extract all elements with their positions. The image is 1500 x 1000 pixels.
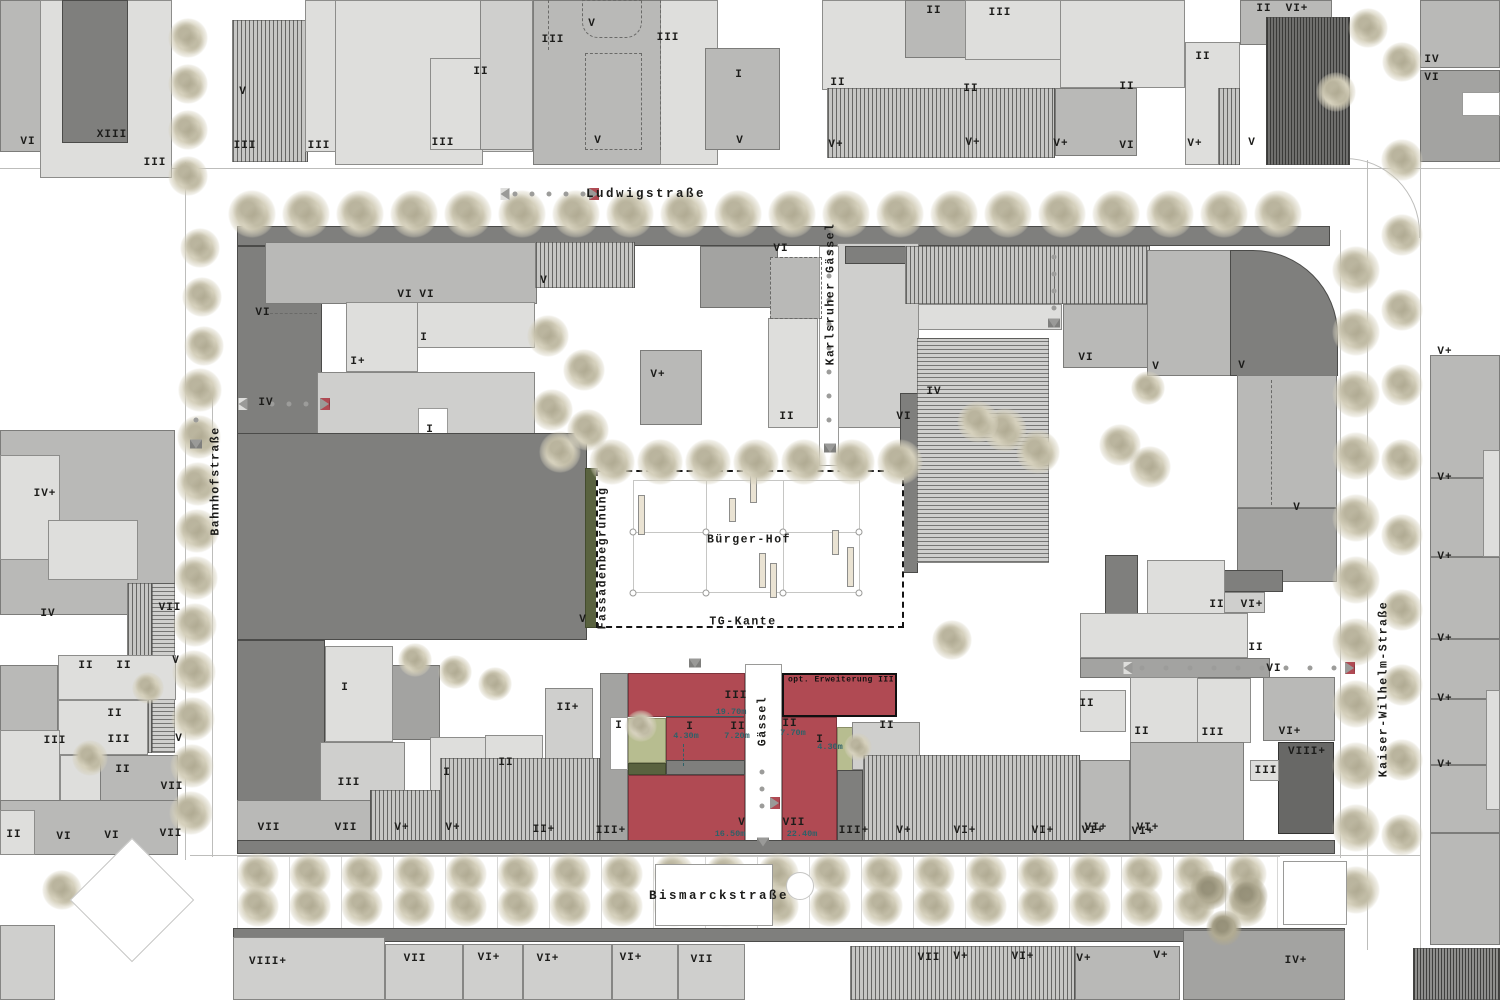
- building: [1063, 304, 1148, 368]
- tree: [1190, 870, 1230, 910]
- building: [918, 304, 1062, 330]
- tree: [539, 431, 581, 473]
- area-label-buerger-hof: Bürger-Hof: [707, 534, 791, 547]
- building: [1430, 833, 1500, 945]
- floor-count-label: VI: [1266, 663, 1281, 675]
- bench: [770, 563, 777, 598]
- building: [1218, 88, 1240, 165]
- path-dot: [1052, 272, 1057, 277]
- floor-count-label: II: [926, 5, 941, 17]
- tree: [393, 885, 435, 927]
- tree: [497, 885, 539, 927]
- direction-arrow-icon: [689, 659, 701, 668]
- floor-count-label: VI: [1119, 140, 1134, 152]
- bench: [638, 495, 645, 535]
- floor-count-label: VII: [258, 822, 281, 834]
- building: [666, 760, 745, 775]
- floor-count-label: II: [115, 764, 130, 776]
- floor-count-label: V: [738, 817, 746, 829]
- floor-count-label: IV: [1424, 54, 1439, 66]
- path-dot: [1188, 666, 1193, 671]
- dimension-label: 7.70m: [780, 728, 806, 738]
- floor-count-label: VII: [160, 828, 183, 840]
- tree: [549, 885, 591, 927]
- floor-count-label: VI: [896, 411, 911, 423]
- floor-count-label: III: [725, 690, 748, 702]
- floor-count-label: VI: [397, 289, 412, 301]
- tree: [1200, 190, 1248, 238]
- floor-count-label: VII: [335, 822, 358, 834]
- tree: [478, 667, 512, 701]
- floor-count-label: V+: [394, 822, 409, 834]
- building: [1230, 250, 1338, 376]
- tree: [844, 733, 872, 761]
- path-dot: [827, 394, 832, 399]
- tree: [72, 740, 108, 776]
- tree: [1381, 139, 1423, 181]
- path-dot: [1236, 666, 1241, 671]
- building: [237, 433, 587, 640]
- plaza-area: [1283, 861, 1347, 925]
- tree: [932, 620, 972, 660]
- dashed-outline: [660, 0, 661, 150]
- floor-count-label: IV: [258, 397, 273, 409]
- floor-count-label: V: [1238, 360, 1246, 372]
- floor-count-label: III: [144, 157, 167, 169]
- floor-count-label: II: [1134, 726, 1149, 738]
- floor-count-label: V+: [965, 137, 980, 149]
- building: [535, 242, 635, 288]
- floor-count-label: II: [1248, 642, 1263, 654]
- floor-count-label: II: [498, 757, 513, 769]
- tree: [1254, 190, 1302, 238]
- tree: [174, 556, 218, 600]
- floor-count-label: II: [879, 720, 894, 732]
- floor-count-label: VIII+: [1288, 746, 1326, 758]
- tree: [1129, 446, 1171, 488]
- tree: [1316, 72, 1356, 112]
- street-line: [0, 168, 1500, 169]
- direction-arrow-icon: [239, 398, 248, 410]
- floor-count-label: VI+: [1032, 825, 1055, 837]
- floor-count-label: V+: [1153, 950, 1168, 962]
- dimension-label: 16.50m: [715, 829, 746, 839]
- floor-count-label: V: [588, 18, 596, 30]
- floor-count-label: VI+: [478, 952, 501, 964]
- tree: [1069, 885, 1111, 927]
- path-dot: [1260, 666, 1265, 671]
- tree: [957, 401, 999, 443]
- tree: [182, 277, 222, 317]
- floor-count-label: V+: [445, 822, 460, 834]
- tree: [168, 156, 208, 196]
- tree: [132, 672, 164, 704]
- tree: [1206, 910, 1242, 946]
- tree: [563, 349, 605, 391]
- floor-count-label: V: [1248, 137, 1256, 149]
- tree: [781, 439, 827, 485]
- floor-count-label: V+: [1076, 953, 1091, 965]
- floor-count-label: I: [426, 424, 434, 436]
- tree: [180, 228, 220, 268]
- building: [1183, 930, 1345, 1000]
- tree: [341, 885, 383, 927]
- tree: [1332, 742, 1380, 790]
- floor-count-label: V+: [1437, 759, 1452, 771]
- floor-count-label: II: [116, 660, 131, 672]
- direction-arrow-icon: [1345, 662, 1355, 674]
- floor-count-label: I: [341, 682, 349, 694]
- building: [965, 0, 1063, 60]
- floor-count-label: XIII: [97, 129, 127, 141]
- floor-count-label: II: [1195, 51, 1210, 63]
- building: [237, 840, 1335, 854]
- floor-count-label: VI+: [1132, 826, 1155, 838]
- path-dot: [760, 804, 765, 809]
- path-dot: [1140, 666, 1145, 671]
- tree: [168, 110, 208, 150]
- tree: [685, 439, 731, 485]
- tree: [336, 190, 384, 238]
- tree: [876, 190, 924, 238]
- building: [1483, 450, 1500, 557]
- tree: [1146, 190, 1194, 238]
- tree: [1348, 8, 1388, 48]
- floor-count-label: II: [6, 829, 21, 841]
- floor-count-label: I: [420, 332, 428, 344]
- path-dot: [760, 770, 765, 775]
- dashed-outline: [1271, 380, 1272, 505]
- floor-count-label: V+: [650, 369, 665, 381]
- building: [417, 302, 535, 348]
- street-label-karlsruher-gaessel: Karlsruher Gässel: [825, 223, 838, 366]
- building: [1430, 557, 1500, 639]
- tree: [289, 885, 331, 927]
- floor-count-label: III: [234, 140, 257, 152]
- dimension-label: 22.40m: [787, 829, 818, 839]
- building: [1486, 690, 1500, 810]
- path-dot: [304, 402, 309, 407]
- tree: [1121, 885, 1163, 927]
- floor-count-label: V: [1293, 502, 1301, 514]
- floor-count-label: VI+: [1286, 3, 1309, 15]
- direction-arrow-icon: [1048, 319, 1060, 328]
- path-dot: [1284, 666, 1289, 671]
- direction-arrow-icon: [1124, 662, 1133, 674]
- bench: [759, 553, 766, 588]
- building: [1080, 613, 1248, 658]
- floor-count-label: IV+: [34, 488, 57, 500]
- floor-count-label: III+: [839, 825, 869, 837]
- floor-count-label: VI+: [620, 952, 643, 964]
- tree: [861, 885, 903, 927]
- floor-count-label: V: [579, 614, 587, 626]
- building: [100, 755, 178, 803]
- floor-count-label: VI+: [1279, 726, 1302, 738]
- floor-count-label: V: [172, 655, 180, 667]
- tree: [1228, 876, 1268, 916]
- plaza-fountain: [786, 872, 814, 900]
- dashed-outline: [770, 257, 822, 319]
- building: [628, 763, 666, 775]
- floor-count-label: V+: [1437, 551, 1452, 563]
- floor-count-label: II: [963, 83, 978, 95]
- path-dot: [547, 192, 552, 197]
- path-dot: [1052, 306, 1057, 311]
- tree: [168, 64, 208, 104]
- floor-count-label: I: [735, 69, 743, 81]
- building: [1060, 0, 1185, 88]
- tree: [1017, 885, 1059, 927]
- floor-count-label: VI+: [537, 953, 560, 965]
- floor-count-label: III: [1255, 765, 1278, 777]
- floor-count-label: III: [432, 137, 455, 149]
- building: [0, 0, 42, 152]
- building: [233, 928, 1345, 942]
- bench: [832, 530, 839, 555]
- dimension-label: 4.30m: [817, 742, 843, 752]
- floor-count-label: VI: [20, 136, 35, 148]
- plaza-diamond: [70, 838, 194, 962]
- tree: [1381, 514, 1423, 556]
- tree: [1381, 289, 1423, 331]
- street-label-gaessel: Gässel: [757, 696, 770, 746]
- floor-count-label: III: [338, 777, 361, 789]
- courtyard-grid-node: [630, 529, 637, 536]
- direction-arrow-icon: [824, 444, 836, 453]
- tree: [1381, 364, 1423, 406]
- building: [1462, 92, 1500, 116]
- floor-count-label: V: [540, 275, 548, 287]
- street-label-kaiser-wilhelm-strasse: Kaiser-Wilhelm-Straße: [1378, 601, 1391, 777]
- tree: [1332, 246, 1380, 294]
- courtyard-grid-node: [703, 590, 710, 597]
- tree: [637, 439, 683, 485]
- building: [233, 937, 385, 1000]
- floor-count-label: VI: [419, 289, 434, 301]
- floor-count-label: V+: [1437, 472, 1452, 484]
- dimension-label: 7.20m: [724, 731, 750, 741]
- floor-count-label: VII: [918, 952, 941, 964]
- tree: [178, 368, 222, 412]
- tree: [1092, 190, 1140, 238]
- floor-count-label: VI+: [1241, 599, 1264, 611]
- site-plan: VIXIIIIIIVIIIIIIIIIIIIIIVIIIVIVIIV+IIIII…: [0, 0, 1500, 1000]
- building: [1223, 570, 1283, 592]
- dimension-line: [683, 744, 684, 766]
- floor-count-label: II: [78, 660, 93, 672]
- floor-count-label: I: [615, 720, 623, 732]
- tree: [1381, 214, 1423, 256]
- floor-count-label: V: [175, 733, 183, 745]
- tree: [444, 190, 492, 238]
- floor-count-label: V: [736, 135, 744, 147]
- floor-count-label: VI: [1078, 352, 1093, 364]
- dimension-label: 19.70m: [716, 707, 747, 717]
- tree: [1381, 814, 1423, 856]
- floor-count-label: IV+: [1285, 955, 1308, 967]
- floor-count-label: V+: [1187, 138, 1202, 150]
- floor-count-label: III: [657, 32, 680, 44]
- area-label-fassadenbegruenung: Fassadenbegrünung: [597, 487, 610, 630]
- building: [1080, 690, 1126, 732]
- building: [1080, 658, 1270, 678]
- floor-count-label: I+: [350, 356, 365, 368]
- tree: [1332, 804, 1380, 852]
- tree: [1332, 370, 1380, 418]
- floor-count-label: VIII+: [249, 956, 287, 968]
- path-dot: [760, 787, 765, 792]
- floor-count-label: VI: [56, 831, 71, 843]
- path-dot: [1164, 666, 1169, 671]
- floor-count-label: VI: [104, 830, 119, 842]
- tree: [282, 190, 330, 238]
- tree: [1038, 190, 1086, 238]
- tree: [1332, 494, 1380, 542]
- building: [745, 664, 782, 846]
- floor-count-label: VII: [691, 954, 714, 966]
- tree: [625, 710, 657, 742]
- dimension-label: 4.30m: [673, 731, 699, 741]
- tree: [1332, 680, 1380, 728]
- dashed-outline: [270, 313, 317, 314]
- floor-count-label: II: [1256, 3, 1271, 15]
- building: [440, 758, 600, 845]
- tree: [168, 18, 208, 58]
- path-dot: [827, 418, 832, 423]
- courtyard-grid-node: [780, 590, 787, 597]
- street-label-bismarckstrasse: Bismarckstraße: [649, 889, 789, 903]
- path-dot: [194, 418, 199, 423]
- tree: [1382, 42, 1422, 82]
- path-dot: [1052, 289, 1057, 294]
- tree: [438, 655, 472, 689]
- floor-count-label: VII: [161, 781, 184, 793]
- floor-count-label: II+: [533, 824, 556, 836]
- tree: [445, 885, 487, 927]
- direction-arrow-icon: [320, 398, 330, 410]
- floor-count-label: II: [1119, 81, 1134, 93]
- tree: [714, 190, 762, 238]
- street-label-bahnhofstrasse: Bahnhofstraße: [210, 426, 223, 535]
- tree: [527, 315, 569, 357]
- tree: [228, 190, 276, 238]
- building: [905, 246, 1150, 304]
- tree: [913, 885, 955, 927]
- direction-arrow-icon: [501, 188, 510, 200]
- area-label-tg-kante: TG-Kante: [709, 616, 776, 629]
- floor-count-label: II: [779, 411, 794, 423]
- floor-count-label: VI+: [1012, 951, 1035, 963]
- tree: [930, 190, 978, 238]
- building: [678, 944, 745, 1000]
- floor-count-label: I: [443, 767, 451, 779]
- floor-count-label: V: [1152, 361, 1160, 373]
- building: [1237, 375, 1337, 508]
- floor-count-label: III: [1202, 727, 1225, 739]
- floor-count-label: III: [542, 34, 565, 46]
- tree: [1332, 618, 1380, 666]
- courtyard-grid-node: [856, 529, 863, 536]
- tree: [1016, 430, 1060, 474]
- floor-count-label: IV: [926, 386, 941, 398]
- floor-count-label: VII: [159, 602, 182, 614]
- tree: [733, 439, 779, 485]
- floor-count-label: III: [108, 734, 131, 746]
- floor-count-label: II: [473, 66, 488, 78]
- courtyard-grid-node: [630, 590, 637, 597]
- floor-count-label: V+: [1437, 633, 1452, 645]
- building: [1413, 948, 1500, 1000]
- tree: [601, 885, 643, 927]
- path-dot: [827, 370, 832, 375]
- tree: [768, 190, 816, 238]
- path-dot: [1052, 255, 1057, 260]
- floor-count-label: VI: [255, 307, 270, 319]
- floor-count-label: VI+: [954, 825, 977, 837]
- tree: [1332, 556, 1380, 604]
- building: [48, 520, 138, 580]
- tree: [965, 885, 1007, 927]
- floor-count-label: V+: [1053, 138, 1068, 150]
- floor-count-label: III+: [596, 825, 626, 837]
- path-dot: [1212, 666, 1217, 671]
- path-dot: [1308, 666, 1313, 671]
- floor-count-label: III: [989, 7, 1012, 19]
- floor-count-label: VI+: [1082, 825, 1105, 837]
- area-label-opt-erweiterung: opt. Erweiterung III: [788, 676, 894, 685]
- floor-count-label: V: [239, 86, 247, 98]
- building: [0, 925, 55, 1000]
- tree: [809, 885, 851, 927]
- path-dot: [581, 192, 586, 197]
- tree: [984, 190, 1032, 238]
- floor-count-label: II: [830, 77, 845, 89]
- building: [62, 0, 128, 143]
- tree: [1332, 308, 1380, 356]
- path-dot: [564, 192, 569, 197]
- floor-count-label: V: [594, 135, 602, 147]
- tree: [877, 439, 923, 485]
- floor-count-label: II: [1079, 698, 1094, 710]
- floor-count-label: IV: [40, 608, 55, 620]
- path-dot: [513, 192, 518, 197]
- direction-arrow-icon: [190, 440, 202, 449]
- path-dot: [1332, 666, 1337, 671]
- floor-count-label: VI: [1424, 72, 1439, 84]
- building: [1147, 250, 1239, 376]
- floor-count-label: II+: [557, 702, 580, 714]
- path-dot: [287, 402, 292, 407]
- bench: [729, 498, 736, 522]
- floor-count-label: II: [107, 708, 122, 720]
- floor-count-label: VII: [783, 817, 806, 829]
- tree: [1381, 439, 1423, 481]
- floor-count-label: V+: [828, 139, 843, 151]
- direction-arrow-icon: [770, 797, 780, 809]
- building: [640, 350, 702, 425]
- building: [325, 646, 393, 742]
- floor-count-label: III: [308, 140, 331, 152]
- floor-count-label: V+: [1437, 346, 1452, 358]
- floor-count-label: V+: [1437, 693, 1452, 705]
- building: [827, 88, 1055, 158]
- tree: [237, 885, 279, 927]
- tree: [1131, 371, 1165, 405]
- floor-count-label: II: [1209, 599, 1224, 611]
- bench: [847, 547, 854, 587]
- floor-count-label: V+: [953, 951, 968, 963]
